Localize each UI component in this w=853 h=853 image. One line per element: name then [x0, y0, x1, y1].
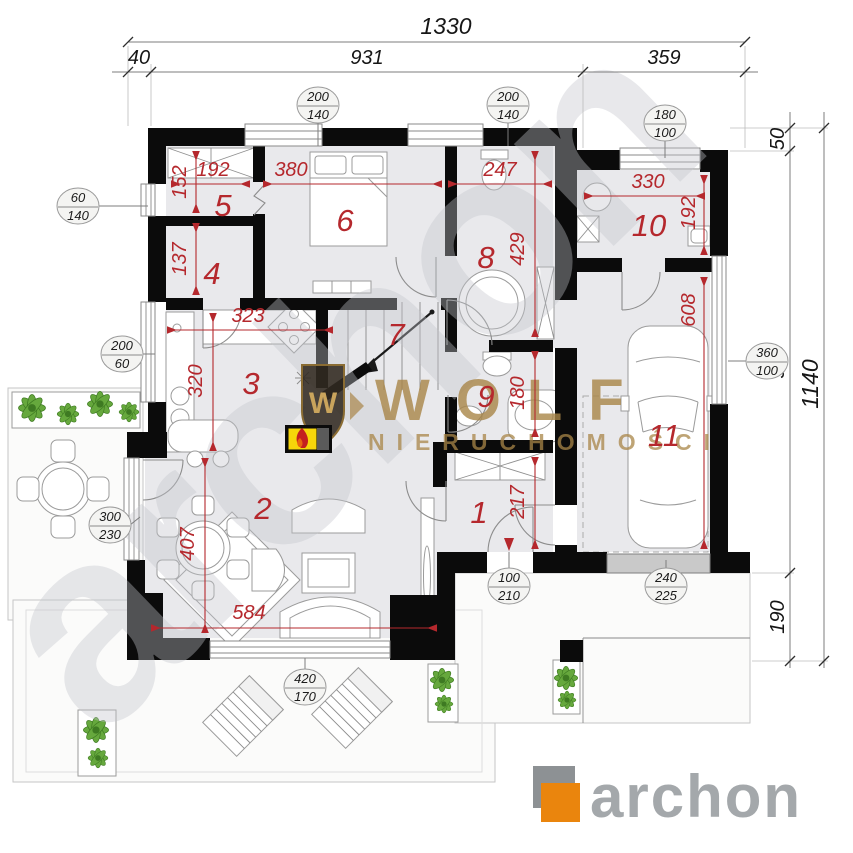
- window-marker: 20060: [101, 336, 143, 372]
- svg-text:60: 60: [71, 190, 86, 205]
- window-marker: 180100: [644, 105, 686, 141]
- svg-text:230: 230: [98, 527, 121, 542]
- room-number-2: 2: [253, 491, 271, 526]
- room-number-4: 4: [203, 256, 220, 291]
- svg-text:140: 140: [307, 107, 329, 122]
- window-marker: 60140: [57, 188, 99, 224]
- archon-logo-text: archon: [590, 763, 802, 830]
- svg-text:200: 200: [306, 89, 329, 104]
- porch-post: [560, 640, 583, 662]
- dim-429: 429: [507, 232, 529, 265]
- fireplace: [285, 425, 332, 453]
- svg-text:200: 200: [496, 89, 519, 104]
- floor-plan-svg: archon W WOLF NIERUCHOMOŚCI 192 380: [0, 0, 853, 853]
- dim-total-height: 1140: [797, 359, 823, 409]
- room-number-8: 8: [477, 240, 495, 275]
- svg-text:100: 100: [756, 363, 778, 378]
- window: [141, 184, 155, 216]
- dim-192: 192: [196, 159, 229, 181]
- archon-logo-orange-square: [541, 783, 580, 822]
- window-marker: 200140: [297, 87, 339, 123]
- svg-text:240: 240: [654, 570, 677, 585]
- wolf-monogram: W: [309, 387, 338, 420]
- window-marker: 360100: [746, 343, 788, 379]
- dim-217: 217: [507, 484, 529, 519]
- dim-137: 137: [169, 241, 191, 275]
- dim-seg-190: 190: [767, 600, 789, 633]
- room-number-3: 3: [242, 366, 259, 401]
- dim-330: 330: [631, 171, 664, 193]
- window: [712, 256, 726, 404]
- dim-320: 320: [185, 364, 207, 397]
- svg-text:100: 100: [498, 570, 520, 585]
- dim-247: 247: [482, 159, 517, 181]
- dim-407: 407: [177, 526, 199, 560]
- archon-logo: archon: [533, 763, 802, 830]
- dim-seg-40: 40: [128, 47, 150, 69]
- dim-380: 380: [274, 159, 307, 181]
- window-marker: 240225: [645, 568, 687, 604]
- svg-text:420: 420: [294, 671, 316, 686]
- svg-text:300: 300: [99, 509, 121, 524]
- room-number-7: 7: [387, 317, 406, 352]
- svg-text:170: 170: [294, 689, 316, 704]
- svg-text:140: 140: [67, 208, 89, 223]
- dim-584: 584: [232, 602, 265, 624]
- room-number-10: 10: [632, 208, 666, 243]
- window-marker: 420170: [284, 669, 326, 705]
- room-number-1: 1: [470, 495, 487, 530]
- svg-text:140: 140: [497, 107, 519, 122]
- room-number-6: 6: [336, 203, 354, 238]
- svg-text:100: 100: [654, 125, 676, 140]
- svg-text:60: 60: [115, 356, 130, 371]
- floor-plan-page: archon W WOLF NIERUCHOMOŚCI 192 380: [0, 0, 853, 853]
- room-number-9: 9: [477, 379, 494, 414]
- dim-608: 608: [678, 293, 700, 326]
- svg-text:210: 210: [497, 588, 520, 603]
- dim-192b: 192: [678, 196, 700, 229]
- dim-seg-359: 359: [647, 47, 680, 69]
- svg-text:225: 225: [654, 588, 677, 603]
- dim-180: 180: [507, 376, 529, 409]
- room-number-11: 11: [648, 418, 680, 453]
- svg-text:180: 180: [654, 107, 676, 122]
- window: [245, 124, 322, 146]
- tv-board: [421, 498, 434, 608]
- dim-152: 152: [169, 165, 191, 198]
- dim-323: 323: [231, 305, 264, 327]
- svg-text:200: 200: [110, 338, 133, 353]
- dim-total-width: 1330: [420, 13, 471, 39]
- window-marker: 300230: [89, 507, 131, 543]
- window-marker: 200140: [487, 87, 529, 123]
- dim-seg-50: 50: [767, 128, 789, 150]
- window-marker: 100210: [488, 568, 530, 604]
- svg-text:360: 360: [756, 345, 778, 360]
- dim-seg-931: 931: [350, 47, 383, 69]
- room-number-5: 5: [214, 188, 232, 223]
